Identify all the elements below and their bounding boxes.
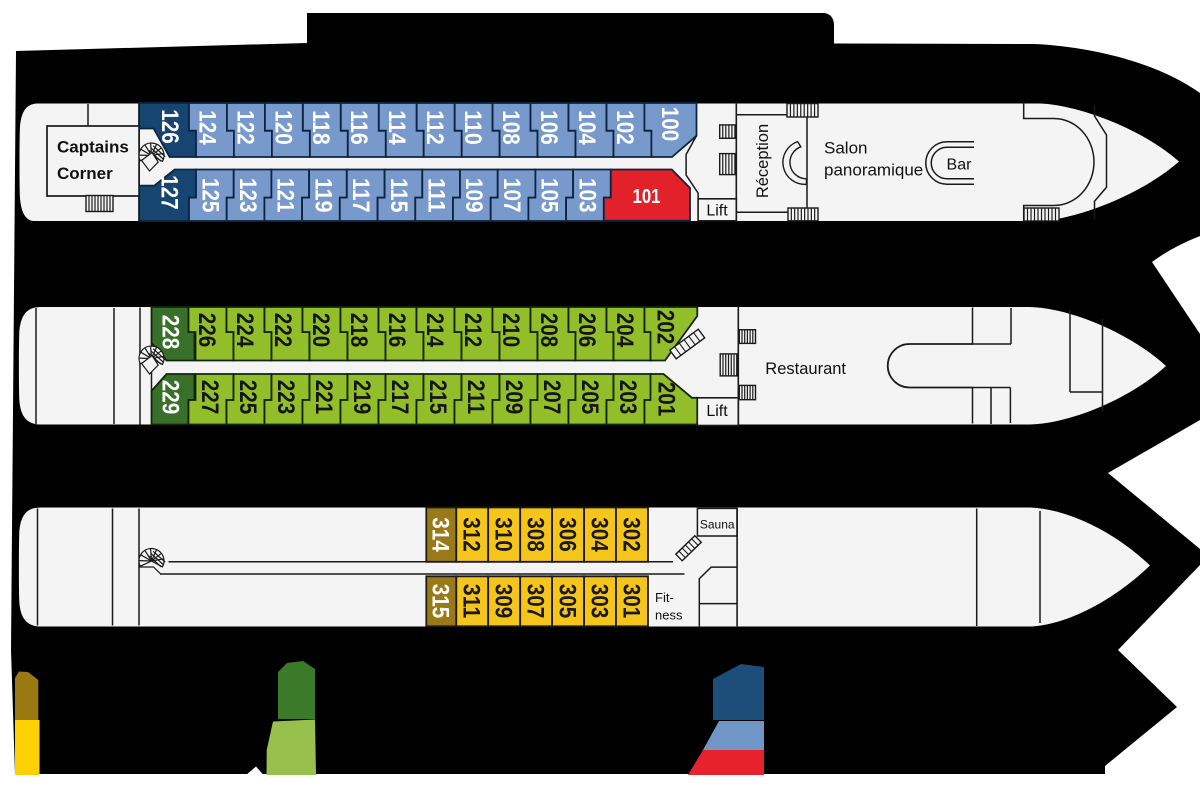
svg-text:303: 303 [585,584,612,619]
svg-text:202: 202 [651,310,678,345]
svg-text:117: 117 [347,178,374,213]
svg-text:307: 307 [522,584,549,619]
svg-text:215: 215 [424,380,451,415]
svg-text:227: 227 [196,380,223,415]
svg-text:Réception: Réception [754,124,772,198]
svg-text:301: 301 [617,584,644,619]
svg-text:104: 104 [573,110,600,145]
svg-text:203: 203 [614,380,641,415]
svg-text:304: 304 [585,517,612,552]
svg-text:125: 125 [196,178,223,213]
svg-text:305: 305 [554,584,581,619]
svg-text:228: 228 [156,315,183,350]
svg-text:220: 220 [307,313,334,348]
svg-text:311: 311 [458,584,485,619]
svg-text:314: 314 [427,517,454,552]
svg-text:207: 207 [538,380,565,415]
svg-text:Corner: Corner [57,164,113,183]
svg-text:204: 204 [611,313,638,348]
svg-text:312: 312 [458,517,485,552]
svg-text:107: 107 [498,178,525,213]
svg-text:226: 226 [193,313,220,348]
svg-text:101: 101 [633,186,661,208]
svg-text:122: 122 [231,110,258,145]
svg-text:309: 309 [490,584,517,619]
svg-text:212: 212 [459,313,486,348]
svg-text:206: 206 [573,313,600,348]
svg-text:102: 102 [611,110,638,145]
svg-text:111: 111 [423,178,450,213]
svg-text:216: 216 [383,313,410,348]
svg-text:221: 221 [310,380,337,415]
svg-text:123: 123 [234,178,261,213]
svg-text:116: 116 [345,110,372,145]
svg-text:124: 124 [193,110,220,145]
svg-text:121: 121 [272,178,299,213]
svg-text:109: 109 [460,178,487,213]
svg-text:302: 302 [617,517,644,552]
svg-text:223: 223 [272,380,299,415]
svg-text:105: 105 [536,178,563,213]
svg-text:224: 224 [231,313,258,348]
svg-text:110: 110 [459,110,486,145]
svg-text:225: 225 [234,380,261,415]
svg-text:208: 208 [535,313,562,348]
svg-text:ness: ness [655,608,683,623]
svg-text:106: 106 [535,110,562,145]
svg-text:308: 308 [522,517,549,552]
svg-text:126: 126 [156,109,183,144]
svg-text:108: 108 [497,110,524,145]
svg-text:Sauna: Sauna [700,518,735,532]
svg-text:Fit-: Fit- [655,590,674,605]
svg-text:Lift: Lift [706,403,728,420]
svg-text:119: 119 [309,178,336,213]
svg-text:Salon: Salon [824,139,867,158]
svg-text:219: 219 [348,380,375,415]
svg-text:118: 118 [307,110,334,145]
svg-text:103: 103 [573,178,600,213]
svg-text:217: 217 [386,380,413,415]
svg-text:Restaurant: Restaurant [765,360,846,378]
svg-text:218: 218 [345,313,372,348]
svg-text:112: 112 [421,110,448,145]
svg-text:Lift: Lift [706,203,728,220]
svg-text:100: 100 [656,107,683,142]
svg-text:222: 222 [269,313,296,348]
svg-text:210: 210 [497,313,524,348]
svg-text:120: 120 [269,110,296,145]
svg-text:114: 114 [383,110,410,145]
svg-text:229: 229 [156,380,183,415]
svg-text:201: 201 [652,382,679,417]
svg-text:315: 315 [427,584,454,619]
svg-text:310: 310 [490,517,517,552]
svg-text:306: 306 [554,517,581,552]
svg-text:Bar: Bar [947,157,973,174]
svg-text:214: 214 [421,313,448,348]
svg-text:209: 209 [500,380,527,415]
svg-text:115: 115 [385,178,412,213]
svg-text:205: 205 [576,380,603,415]
svg-text:211: 211 [462,380,489,415]
svg-text:Captains: Captains [57,138,129,157]
svg-text:panoramique: panoramique [824,161,923,180]
svg-text:127: 127 [155,175,182,210]
